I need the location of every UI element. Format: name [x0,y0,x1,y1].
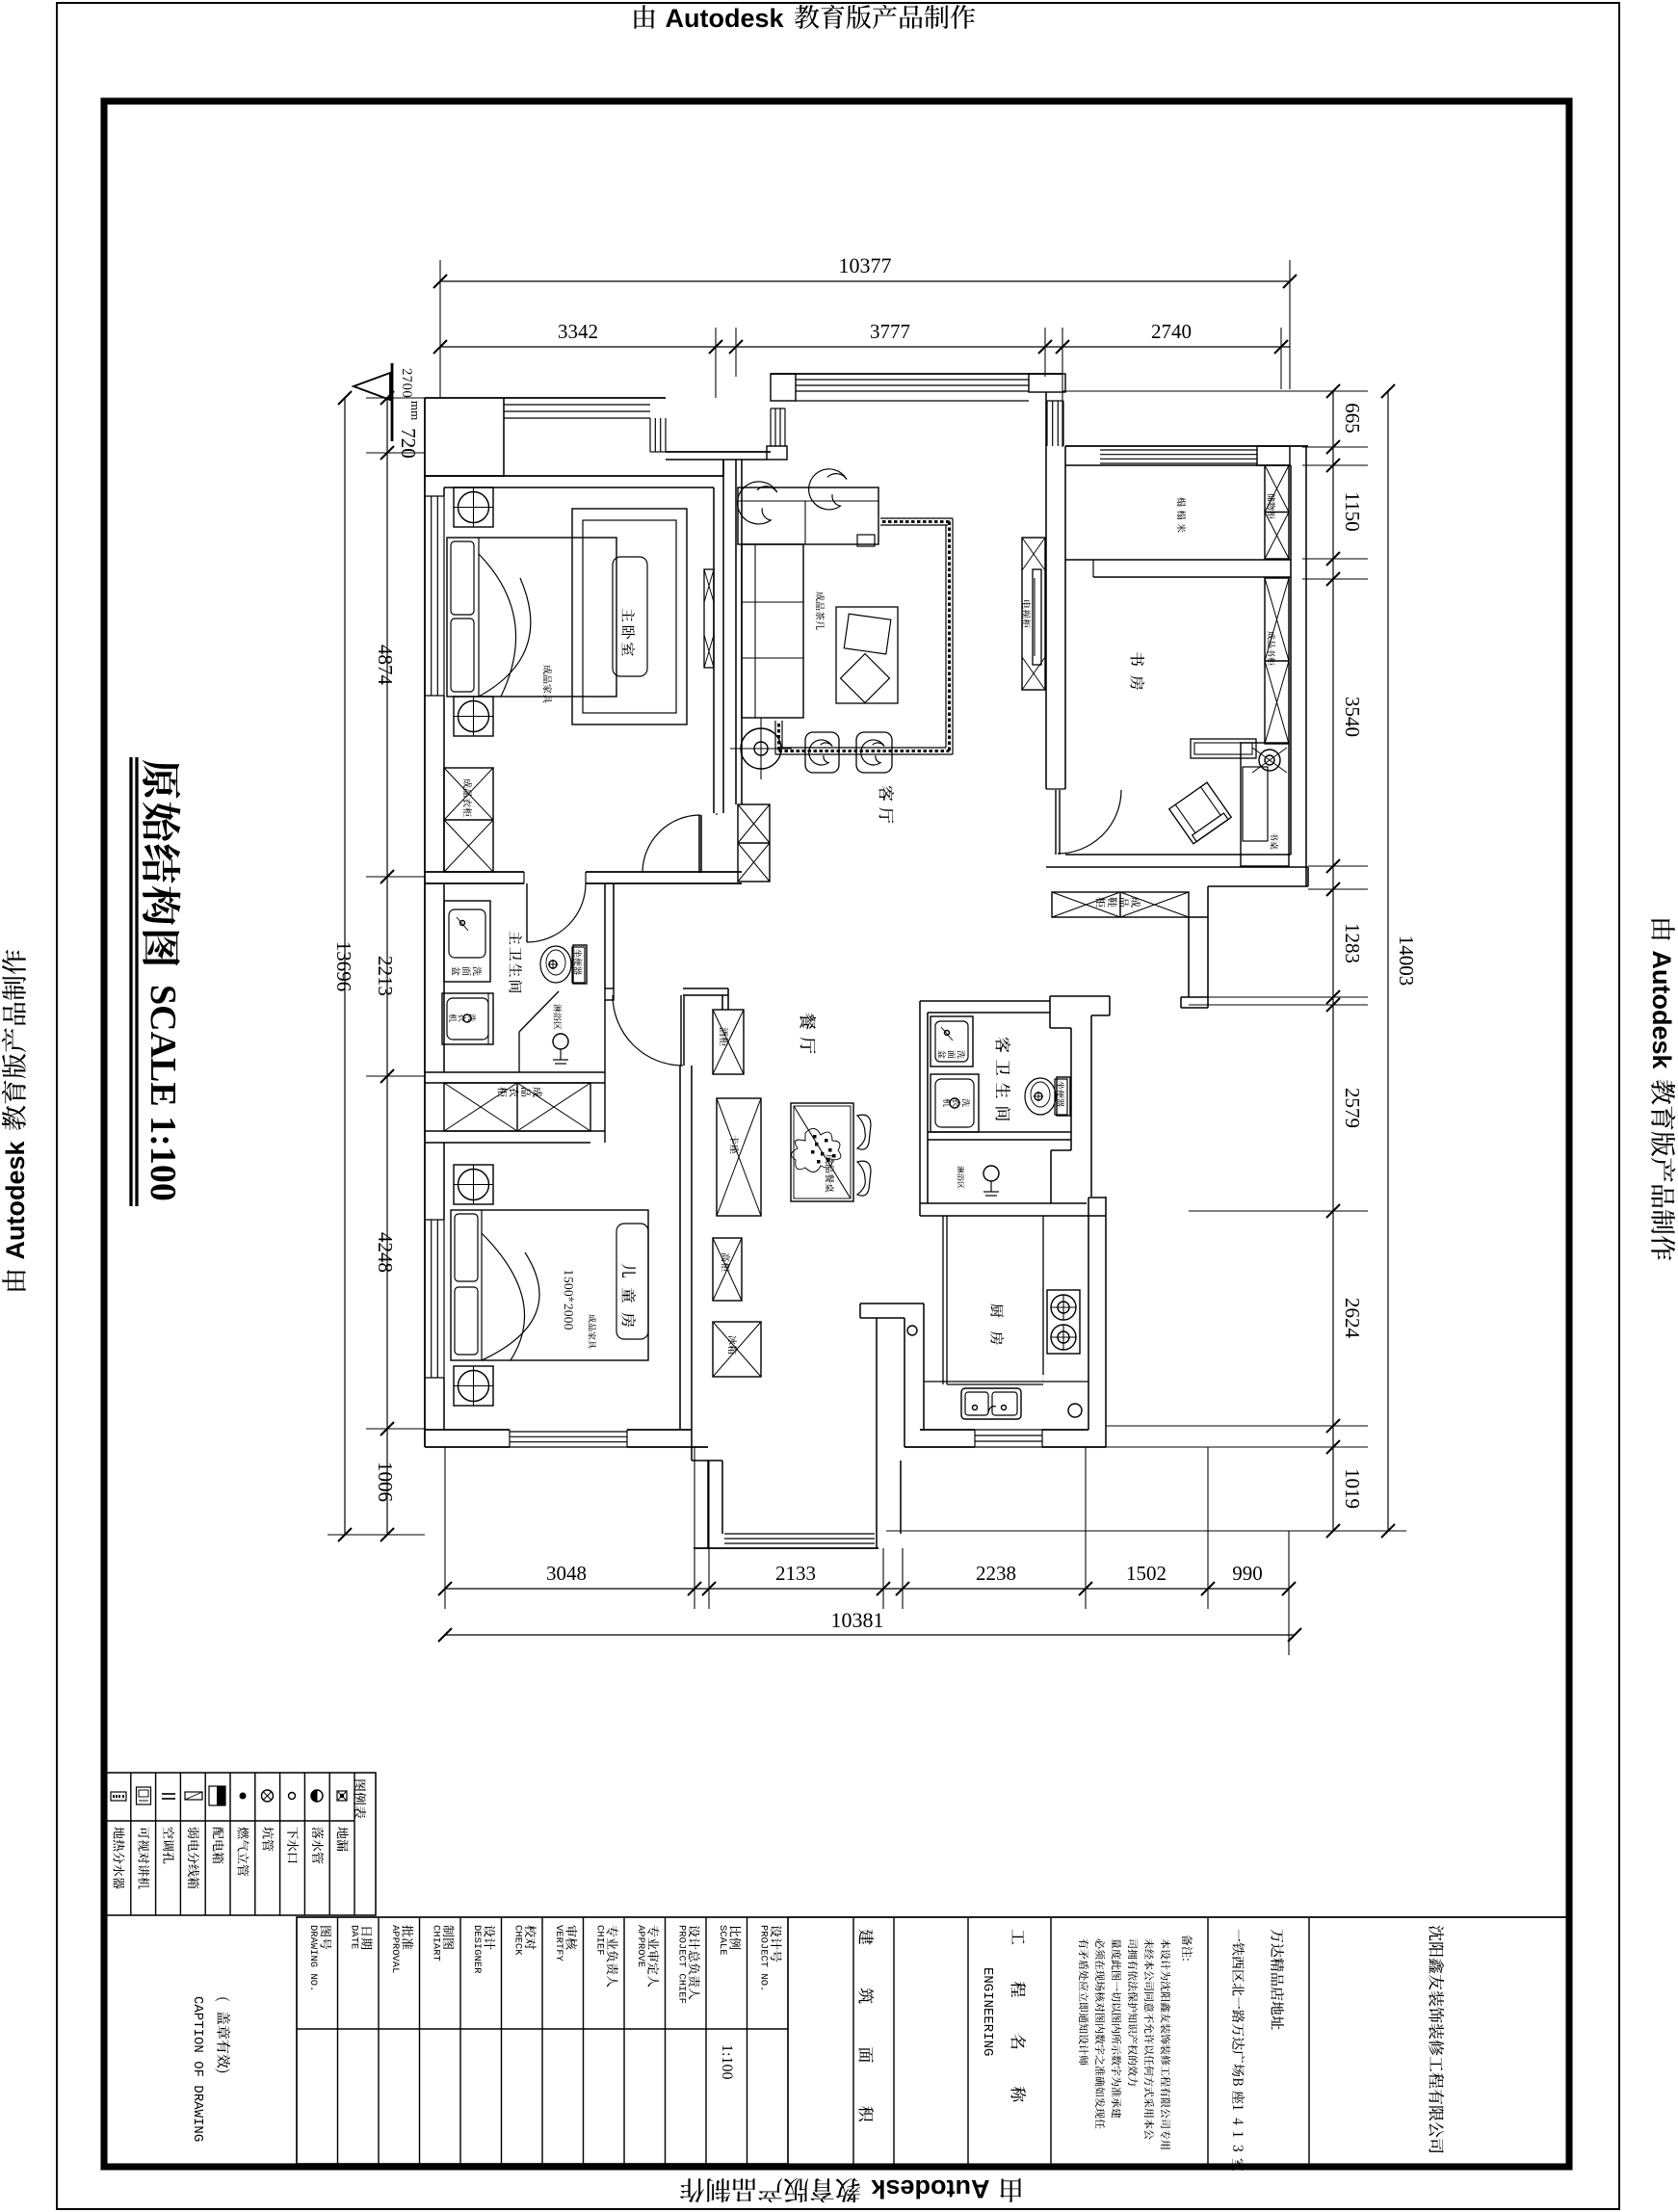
svg-text:Autodesk: Autodesk [1,1141,30,1260]
svg-text:SCALE: SCALE [717,1925,728,1956]
svg-text:DESIGNER: DESIGNER [471,1925,483,1974]
svg-text:3048: 3048 [546,1562,587,1585]
svg-text:1283: 1283 [1341,923,1364,963]
svg-text:2238: 2238 [976,1562,1016,1585]
svg-text:4248: 4248 [374,1232,397,1273]
svg-text:CHECK: CHECK [512,1925,524,1956]
svg-text:APPROVE: APPROVE [635,1925,646,1967]
svg-text:1150: 1150 [1341,491,1364,531]
svg-text:10381: 10381 [831,1608,884,1632]
svg-text:2133: 2133 [775,1562,816,1585]
svg-text:DRAWING NO.: DRAWING NO. [307,1925,319,1991]
svg-text:ENGINEERING: ENGINEERING [980,1967,995,2056]
svg-text:3540: 3540 [1341,697,1364,737]
svg-text:3342: 3342 [558,320,598,343]
svg-text:1006: 1006 [374,1461,397,1502]
svg-text:SCALE 1:100: SCALE 1:100 [143,985,183,1201]
svg-text:2740: 2740 [1151,320,1192,343]
svg-text:1019: 1019 [1341,1468,1364,1509]
svg-text:2213: 2213 [374,956,397,996]
svg-text:990: 990 [1232,1562,1263,1585]
svg-text:Autodesk: Autodesk [871,2174,990,2203]
svg-text:720: 720 [397,428,420,459]
svg-text:Autodesk: Autodesk [1647,950,1676,1069]
svg-text:4874: 4874 [374,645,397,686]
svg-text:14003: 14003 [1395,935,1418,987]
svg-text:3777: 3777 [870,320,910,343]
svg-text:CHIART: CHIART [431,1925,442,1962]
svg-text:1:100: 1:100 [719,2044,735,2079]
svg-text:10377: 10377 [839,253,892,277]
svg-text:VERTFY: VERTFY [553,1925,564,1962]
svg-text:2579: 2579 [1341,1088,1364,1128]
svg-text:1502: 1502 [1126,1562,1167,1585]
svg-text:CAPTION OF DRAWING: CAPTION OF DRAWING [190,1996,205,2142]
svg-text:PROJECT NO.: PROJECT NO. [758,1925,770,1991]
svg-text:665: 665 [1341,403,1364,434]
svg-text:Autodesk: Autodesk [665,4,784,33]
svg-text:PROJECT CHIEF: PROJECT CHIEF [676,1925,688,2004]
svg-text:2624: 2624 [1341,1298,1364,1339]
svg-text:CHIEF: CHIEF [594,1925,606,1956]
svg-text:DATE: DATE [349,1925,360,1949]
svg-text:mm: mm [408,401,423,420]
svg-text:APPROVAL: APPROVAL [389,1925,401,1973]
svg-text:13696: 13696 [332,941,355,992]
